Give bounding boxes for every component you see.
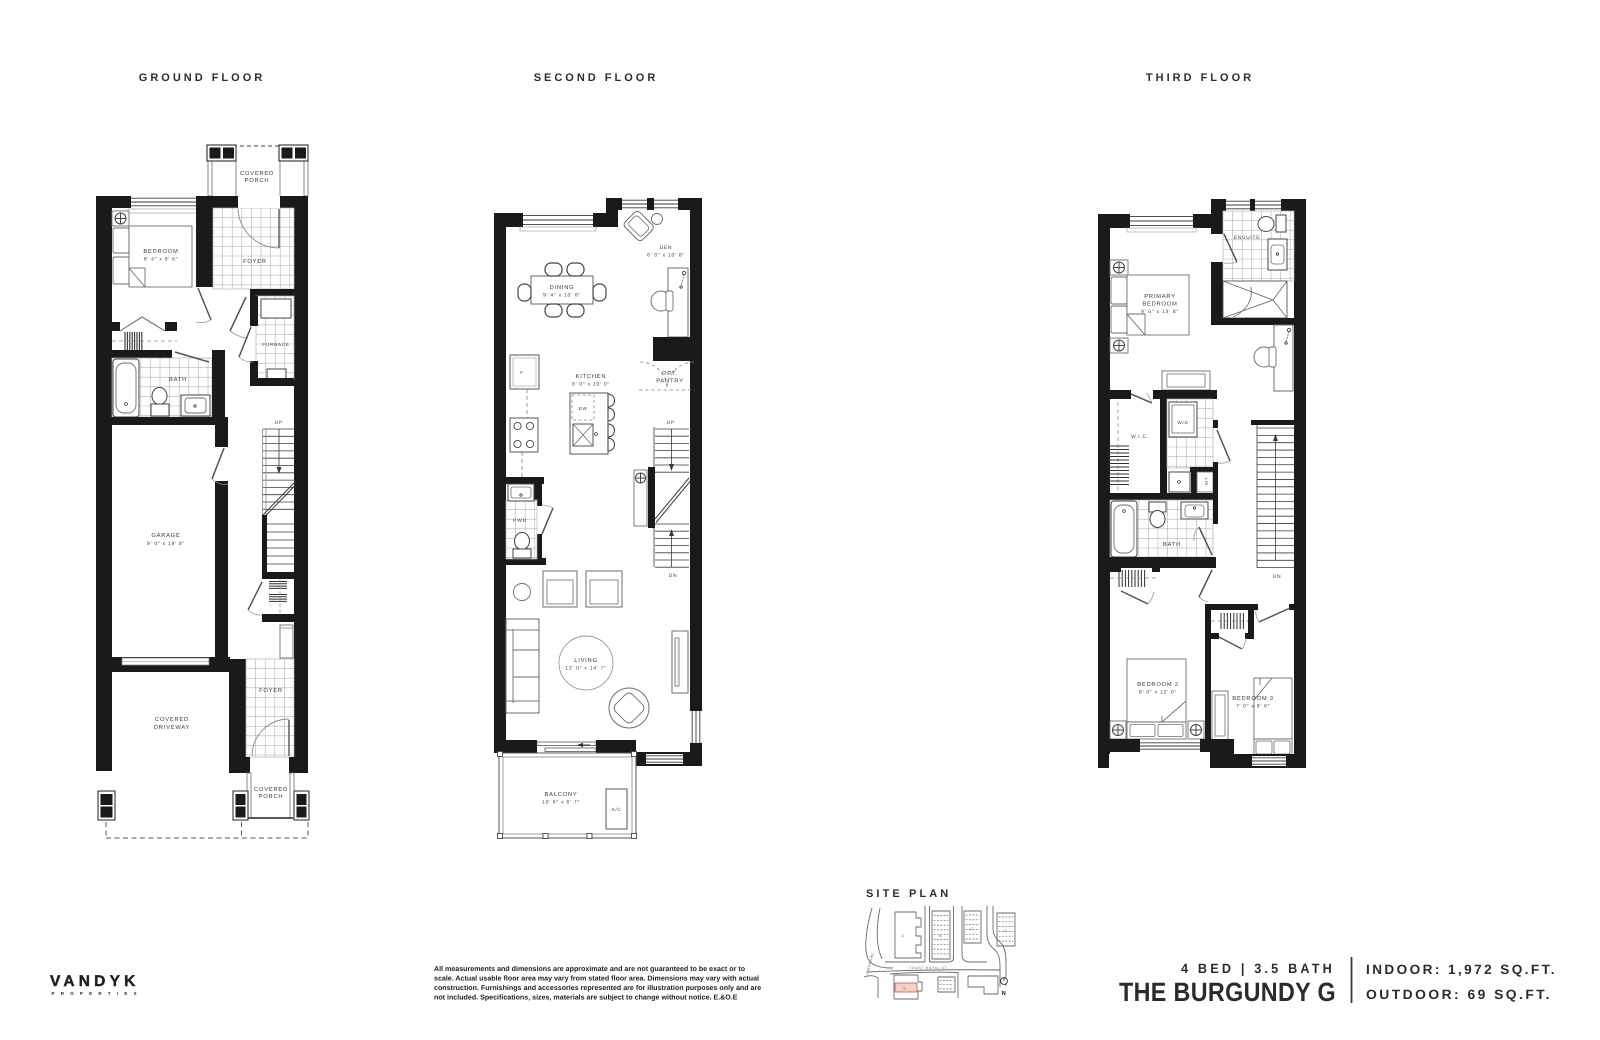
svg-text:9′ 4″ x 10′ 8″: 9′ 4″ x 10′ 8″	[543, 293, 581, 299]
svg-text:A/C: A/C	[612, 807, 622, 812]
svg-text:N: N	[1001, 990, 1006, 997]
svg-text:9′ 0″ x 19′ 8″: 9′ 0″ x 19′ 8″	[147, 541, 185, 547]
svg-text:VANDYK: VANDYK	[50, 973, 140, 990]
svg-text:LIN: LIN	[1204, 478, 1209, 486]
svg-text:INDOOR: 1,972 SQ.FT.: INDOOR: 1,972 SQ.FT.	[1366, 962, 1557, 977]
svg-text:GROUND FLOOR: GROUND FLOOR	[139, 72, 265, 84]
svg-text:PWD: PWD	[513, 518, 527, 524]
svg-text:BATH: BATH	[169, 377, 187, 383]
svg-text:FURNACE: FURNACE	[262, 342, 289, 347]
svg-text:8′ 0″ x 12′ 0″: 8′ 0″ x 12′ 0″	[1139, 690, 1177, 696]
svg-text:8′ 0″ x 10′ 0″: 8′ 0″ x 10′ 0″	[572, 382, 610, 388]
svg-text:BEDROOM 3: BEDROOM 3	[1232, 695, 1274, 702]
svg-text:9′ 5″ x 13′ 8″: 9′ 5″ x 13′ 8″	[1141, 309, 1179, 315]
svg-text:FRONT ROYAL ST.: FRONT ROYAL ST.	[910, 966, 949, 970]
svg-text:COVERED: COVERED	[155, 716, 189, 723]
svg-text:PROPERTIES: PROPERTIES	[52, 991, 143, 996]
svg-text:W.I.C.: W.I.C.	[1131, 434, 1149, 440]
svg-text:THIRD FLOOR: THIRD FLOOR	[1146, 72, 1254, 84]
svg-text:F: F	[520, 370, 523, 375]
svg-text:DN: DN	[1273, 574, 1282, 580]
svg-text:scale. Actual usable floor are: scale. Actual usable floor area may vary…	[434, 975, 759, 983]
svg-text:6′ 0″ x 10′ 8″: 6′ 0″ x 10′ 8″	[647, 253, 685, 259]
svg-text:BEDROOM 2: BEDROOM 2	[1137, 681, 1179, 688]
svg-text:DINING: DINING	[550, 284, 575, 291]
svg-text:DN: DN	[669, 573, 678, 579]
svg-text:FOYER: FOYER	[243, 258, 267, 265]
svg-text:PORCH: PORCH	[259, 793, 284, 800]
svg-text:COVERED: COVERED	[240, 170, 274, 177]
svg-text:C: C	[970, 927, 973, 931]
svg-text:10′ 6″ x 6′ 7″: 10′ 6″ x 6′ 7″	[542, 800, 580, 806]
svg-text:BEDROOM: BEDROOM	[143, 248, 178, 255]
svg-text:D: D	[1004, 929, 1007, 933]
svg-text:THE BURGUNDY G: THE BURGUNDY G	[1119, 977, 1336, 1007]
svg-text:PRIMARY: PRIMARY	[1144, 294, 1176, 300]
svg-text:DRIVEWAY: DRIVEWAY	[154, 725, 190, 731]
svg-text:DEN: DEN	[660, 245, 673, 251]
svg-text:4 BED | 3.5 BATH: 4 BED | 3.5 BATH	[1181, 961, 1335, 976]
svg-text:SITE PLAN: SITE PLAN	[866, 888, 951, 900]
svg-text:BEDROOM: BEDROOM	[1142, 301, 1177, 308]
svg-text:UP: UP	[275, 420, 283, 426]
svg-text:not included. Specifications,: not included. Specifications, sizes, mat…	[434, 994, 738, 1002]
svg-text:GARAGE: GARAGE	[151, 532, 180, 539]
svg-text:A: A	[901, 934, 904, 938]
svg-text:OUTDOOR: 69 SQ.FT.: OUTDOOR: 69 SQ.FT.	[1366, 987, 1552, 1002]
svg-text:UP: UP	[667, 420, 675, 426]
svg-text:SECOND FLOOR: SECOND FLOOR	[534, 72, 659, 84]
svg-text:COVERED: COVERED	[254, 786, 288, 793]
svg-text:construction. Furnishings and: construction. Furnishings and accessorie…	[434, 984, 761, 992]
svg-text:BATH: BATH	[1163, 542, 1181, 548]
svg-text:W/D: W/D	[1177, 420, 1188, 425]
svg-text:All measurements and dimension: All measurements and dimensions are appr…	[434, 965, 746, 973]
svg-text:12′ 0″ x 14′ 7″: 12′ 0″ x 14′ 7″	[565, 666, 606, 672]
svg-text:LIVING: LIVING	[574, 657, 598, 664]
svg-text:8′ 4″ x 9′ 6″: 8′ 4″ x 9′ 6″	[144, 257, 178, 263]
svg-text:E: E	[903, 987, 906, 991]
svg-text:ENSUITE: ENSUITE	[1234, 235, 1260, 241]
svg-text:KITCHEN: KITCHEN	[576, 373, 607, 380]
svg-text:7′ 0″ x 8′ 6″: 7′ 0″ x 8′ 6″	[1236, 704, 1270, 710]
svg-text:PANTRY: PANTRY	[656, 379, 683, 385]
svg-text:PORCH: PORCH	[245, 177, 270, 184]
svg-text:BALCONY: BALCONY	[545, 791, 578, 798]
svg-text:OPT.: OPT.	[662, 370, 678, 377]
svg-text:FOYER: FOYER	[259, 687, 283, 694]
svg-text:DW: DW	[579, 406, 588, 411]
svg-text:B: B	[939, 934, 942, 938]
